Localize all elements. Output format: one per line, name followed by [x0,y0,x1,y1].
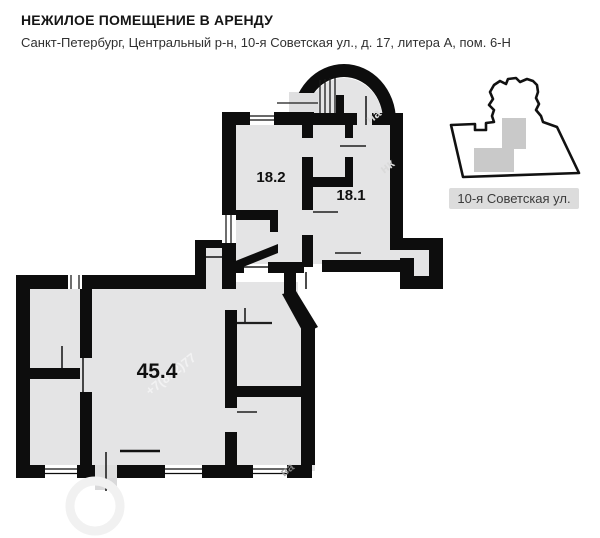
listing-floorplan-page: НЕЖИЛОЕ ПОМЕЩЕНИЕ В АРЕНДУ Санкт-Петербу… [0,0,600,538]
window-topwall-slit [68,275,82,289]
window-bottom-2 [165,465,202,478]
room-label-18-2: 18.2 [256,169,285,186]
window-top [250,112,274,125]
window-left [222,215,236,243]
stair-enclosure-wall [336,95,344,115]
floorplan-image: +7(812)77 на нк ва 18.2 18.1 45.4 10-я С… [0,0,600,538]
inset-map: 10-я Советская ул. [449,78,579,209]
window-bottom-1 [45,465,77,478]
room-label-18-1: 18.1 [336,187,365,204]
room-label-45-4: 45.4 [137,360,178,383]
inset-street-label: 10-я Советская ул. [457,191,570,206]
